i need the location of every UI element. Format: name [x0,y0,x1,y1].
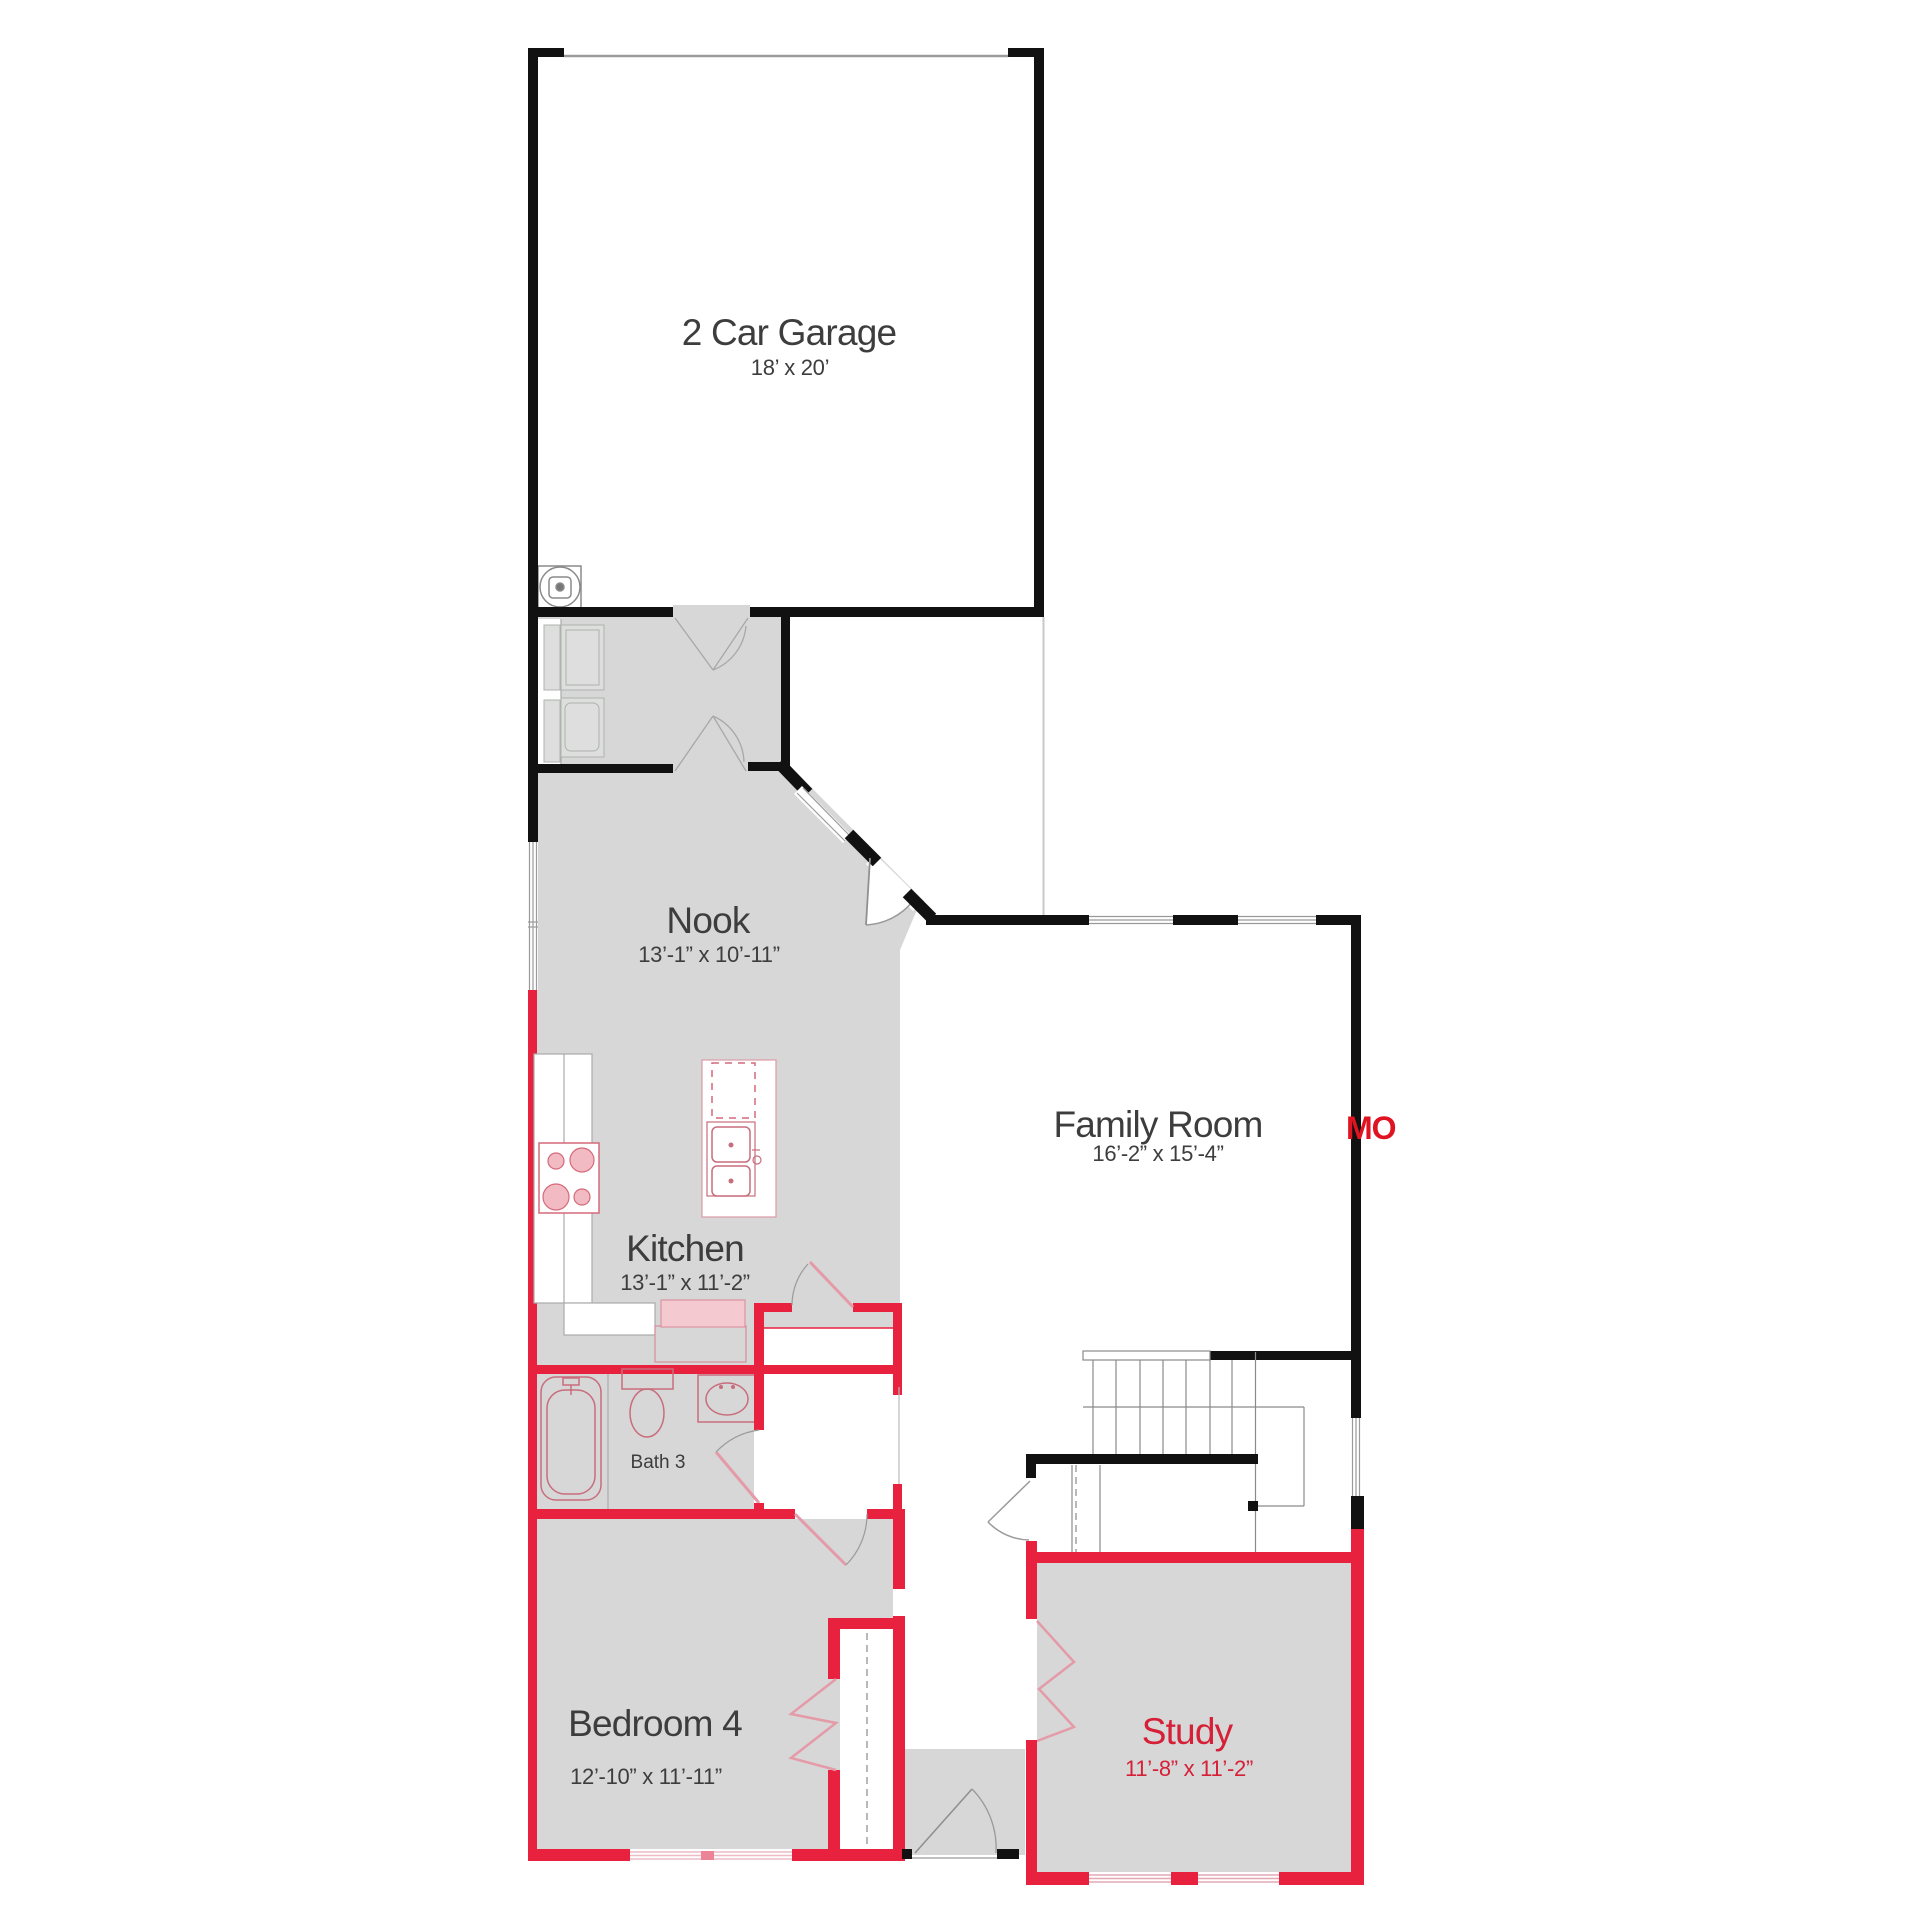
svg-text:2 Car Garage: 2 Car Garage [682,312,897,353]
svg-text:Study: Study [1142,1711,1234,1752]
svg-text:Kitchen: Kitchen [626,1228,744,1269]
svg-text:13’-1” x 11’-2”: 13’-1” x 11’-2” [620,1270,750,1295]
svg-text:MO: MO [1346,1110,1396,1146]
svg-text:11’-8” x 11’-2”: 11’-8” x 11’-2” [1125,1756,1253,1781]
svg-text:18’ x 20’: 18’ x 20’ [751,355,829,380]
svg-text:Bedroom 4: Bedroom 4 [568,1703,742,1744]
svg-text:13’-1” x 10’-11”: 13’-1” x 10’-11” [638,942,780,967]
svg-text:16’-2” x 15’-4”: 16’-2” x 15’-4” [1092,1141,1223,1166]
svg-text:12’-10” x 11’-11”: 12’-10” x 11’-11” [570,1764,722,1789]
svg-text:Nook: Nook [666,900,750,941]
svg-text:Bath 3: Bath 3 [631,1452,686,1473]
svg-text:Family Room: Family Room [1053,1104,1262,1145]
